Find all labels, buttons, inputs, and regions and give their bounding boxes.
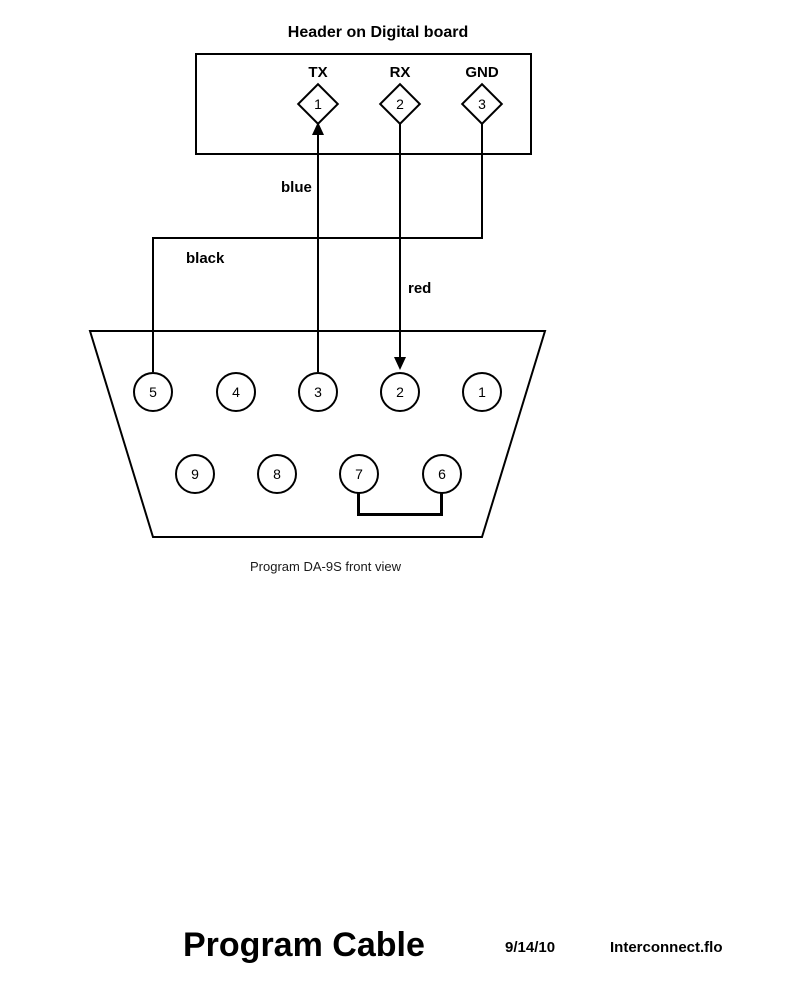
db9-pin-4: 4 <box>216 372 256 412</box>
db9-pin-9-number: 9 <box>191 466 199 482</box>
db9-pin-2-number: 2 <box>396 384 404 400</box>
blue-wire-label: blue <box>281 179 312 196</box>
program-cable-diagram: Header on Digital board TX RX GND 1 2 3 … <box>0 0 800 983</box>
db9-pin-1: 1 <box>462 372 502 412</box>
db9-pin-9: 9 <box>175 454 215 494</box>
db9-pin-5-number: 5 <box>149 384 157 400</box>
jumper-wire-bottom <box>357 513 443 516</box>
connector-caption: Program DA-9S front view <box>250 559 401 574</box>
blue-wire <box>317 134 319 372</box>
db9-pin-6-number: 6 <box>438 466 446 482</box>
black-wire-label: black <box>186 250 224 267</box>
db9-pin-4-number: 4 <box>232 384 240 400</box>
db9-pin-6: 6 <box>422 454 462 494</box>
db9-pin-3: 3 <box>298 372 338 412</box>
db9-pin-7: 7 <box>339 454 379 494</box>
footer-filename: Interconnect.flo <box>610 939 723 956</box>
red-wire <box>399 123 401 357</box>
db9-pin-8-number: 8 <box>273 466 281 482</box>
db9-pin-1-number: 1 <box>478 384 486 400</box>
db9-pin-5: 5 <box>133 372 173 412</box>
red-wire-label: red <box>408 280 431 297</box>
page-title: Program Cable <box>183 926 425 965</box>
db9-pin-7-number: 7 <box>355 466 363 482</box>
db9-pin-8: 8 <box>257 454 297 494</box>
black-wire-segment-to-pin5 <box>152 237 154 372</box>
red-wire-arrowhead-down <box>394 357 406 370</box>
black-wire-segment-down <box>481 124 483 239</box>
db9-pin-3-number: 3 <box>314 384 322 400</box>
db9-pin-2: 2 <box>380 372 420 412</box>
jumper-wire-right <box>440 493 443 516</box>
black-wire-segment-across <box>152 237 483 239</box>
footer-date: 9/14/10 <box>505 939 555 956</box>
